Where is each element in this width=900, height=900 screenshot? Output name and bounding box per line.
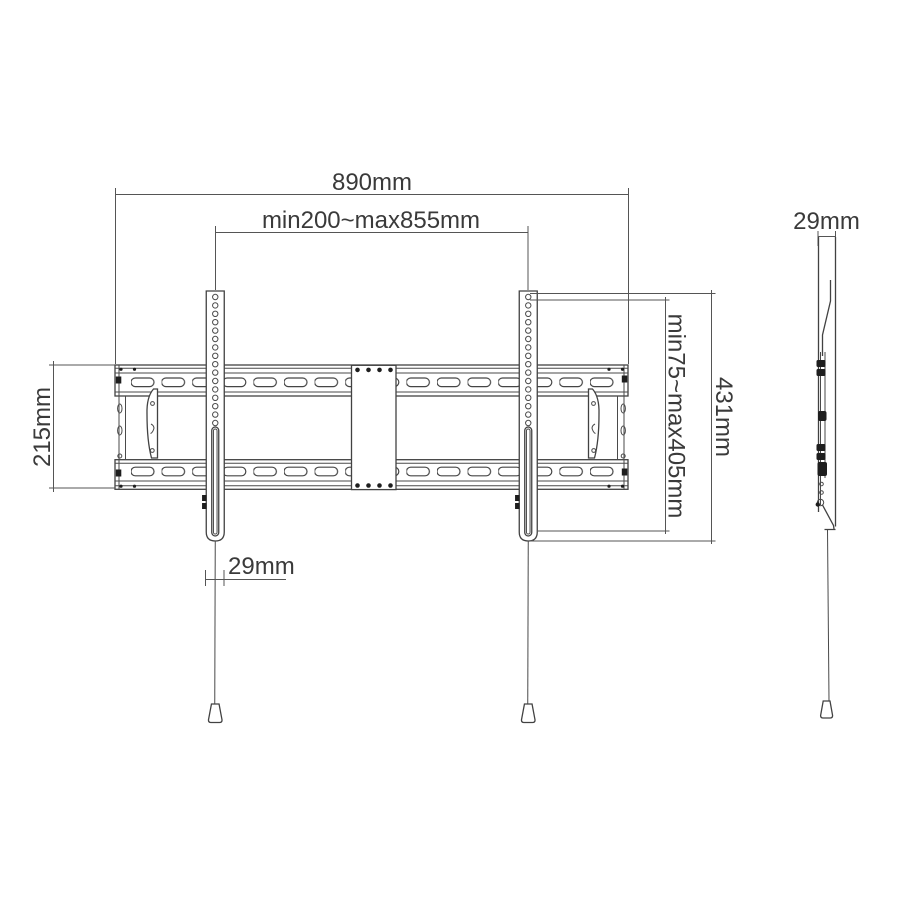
dim-wall-plate-height: 215mm [29,361,115,492]
dim-bracket-width: 29mm [206,553,295,586]
dim-horizontal-mount-range: min200~max855mm [216,207,529,290]
dim-bracket-height-label: 431mm [710,377,737,457]
side-pull-cord [828,530,830,701]
dim-horizontal-mount-range-label: min200~max855mm [262,207,480,234]
vesa-plate [352,365,397,489]
side-pull-handle [821,701,833,718]
dim-vertical-mount-range-label: min75~max405mm [663,314,690,519]
dim-profile-depth-label: 29mm [793,208,860,235]
dim-overall-width-label: 890mm [332,169,412,196]
tv-bracket-strip-left [202,291,224,723]
dim-bracket-width-label: 29mm [228,553,295,580]
technical-drawing: 890mm min200~max855mm 215mm 431mm min75~… [0,0,900,900]
tv-bracket-strip-right [515,291,537,723]
dim-overall-width: 890mm [116,169,629,364]
dim-wall-plate-height-label: 215mm [29,387,56,467]
technical-drawing-canvas: 890mm min200~max855mm 215mm 431mm min75~… [0,0,900,900]
front-view: 890mm min200~max855mm 215mm 431mm min75~… [29,169,737,723]
side-profile [816,237,836,718]
side-view: 29mm [793,208,860,718]
dim-profile-depth: 29mm [793,208,860,246]
